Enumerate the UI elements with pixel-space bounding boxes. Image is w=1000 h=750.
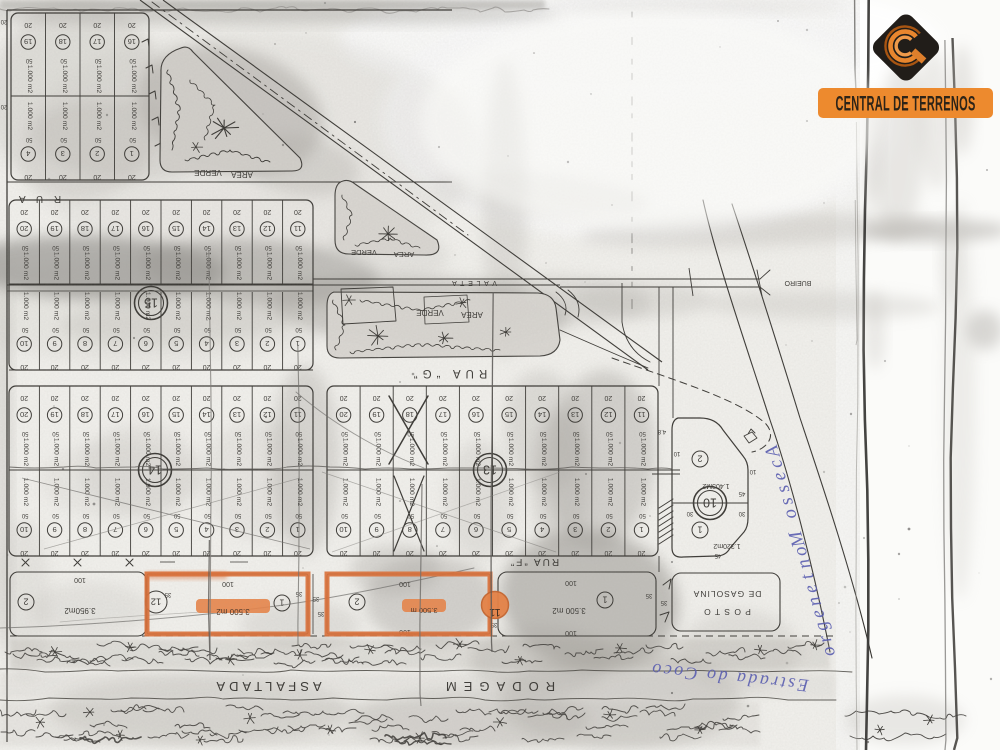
svg-text:CENTRAL DE TERRENOS: CENTRAL DE TERRENOS bbox=[835, 92, 975, 116]
